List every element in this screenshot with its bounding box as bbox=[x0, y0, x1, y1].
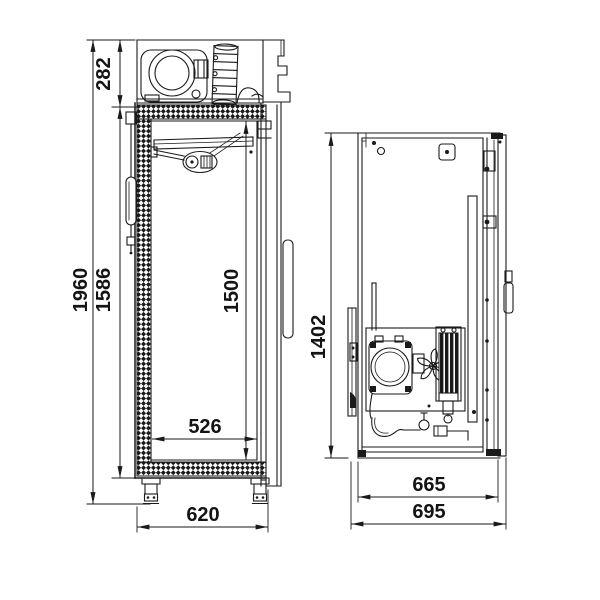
evaporator-assembly bbox=[151, 121, 271, 173]
technical-drawing-page: 1960 282 1586 1500 526 620 bbox=[0, 0, 600, 600]
wall-strip bbox=[468, 196, 477, 422]
insulation-bottom bbox=[137, 462, 266, 476]
compartment-cover-step bbox=[263, 40, 290, 102]
top-corner-bracket bbox=[491, 133, 503, 139]
dim-body-depth-label: 665 bbox=[412, 474, 445, 496]
dim-interior-height-label: 1500 bbox=[221, 269, 243, 314]
side-filter-drier bbox=[443, 401, 453, 423]
drawing-canvas: 1960 282 1586 1500 526 620 bbox=[0, 0, 600, 600]
dim-body-depth: 665 bbox=[358, 460, 498, 502]
dim-interior-height: 1500 bbox=[221, 122, 246, 460]
dim-insulated-body-height-label: 1586 bbox=[93, 268, 115, 313]
dim-interior-width: 526 bbox=[153, 416, 257, 439]
compressor bbox=[141, 50, 207, 102]
machine-bay bbox=[348, 308, 483, 447]
fan-motor bbox=[194, 60, 208, 78]
condenser-fins bbox=[436, 327, 461, 401]
door bbox=[261, 102, 293, 486]
machine-compartment bbox=[137, 40, 290, 106]
dim-insulated-body-height: 1586 bbox=[93, 107, 135, 478]
side-cabinet-outline bbox=[358, 133, 500, 458]
side-view: 1402 665 695 bbox=[308, 133, 513, 529]
insulation-side-wall bbox=[137, 119, 151, 462]
leg-left bbox=[142, 478, 160, 504]
discharge-pipe bbox=[237, 88, 263, 103]
interior-lamp-bracket bbox=[258, 121, 271, 138]
dim-overall-width: 620 bbox=[137, 490, 268, 532]
dim-machine-compartment-height-label: 282 bbox=[93, 57, 115, 90]
drain-channel bbox=[348, 308, 357, 416]
insulation-top bbox=[137, 105, 266, 119]
dim-machine-compartment-height: 282 bbox=[93, 40, 140, 107]
evaporator-fan bbox=[183, 152, 217, 173]
dim-overall-height-label: 1960 bbox=[70, 268, 92, 313]
bottom-corner-bracket bbox=[486, 449, 501, 456]
dim-body-height-label: 1402 bbox=[308, 315, 330, 360]
dim-body-height: 1402 bbox=[308, 133, 358, 458]
door-handle bbox=[283, 240, 293, 338]
dim-overall-width-label: 620 bbox=[186, 504, 219, 526]
front-view: 1960 282 1586 1500 526 620 bbox=[70, 40, 293, 532]
door-edge bbox=[358, 133, 513, 457]
dim-overall-depth-label: 695 bbox=[412, 501, 445, 523]
side-compressor bbox=[369, 336, 412, 394]
condenser-coil bbox=[212, 44, 238, 107]
dim-interior-width-label: 526 bbox=[188, 416, 221, 438]
